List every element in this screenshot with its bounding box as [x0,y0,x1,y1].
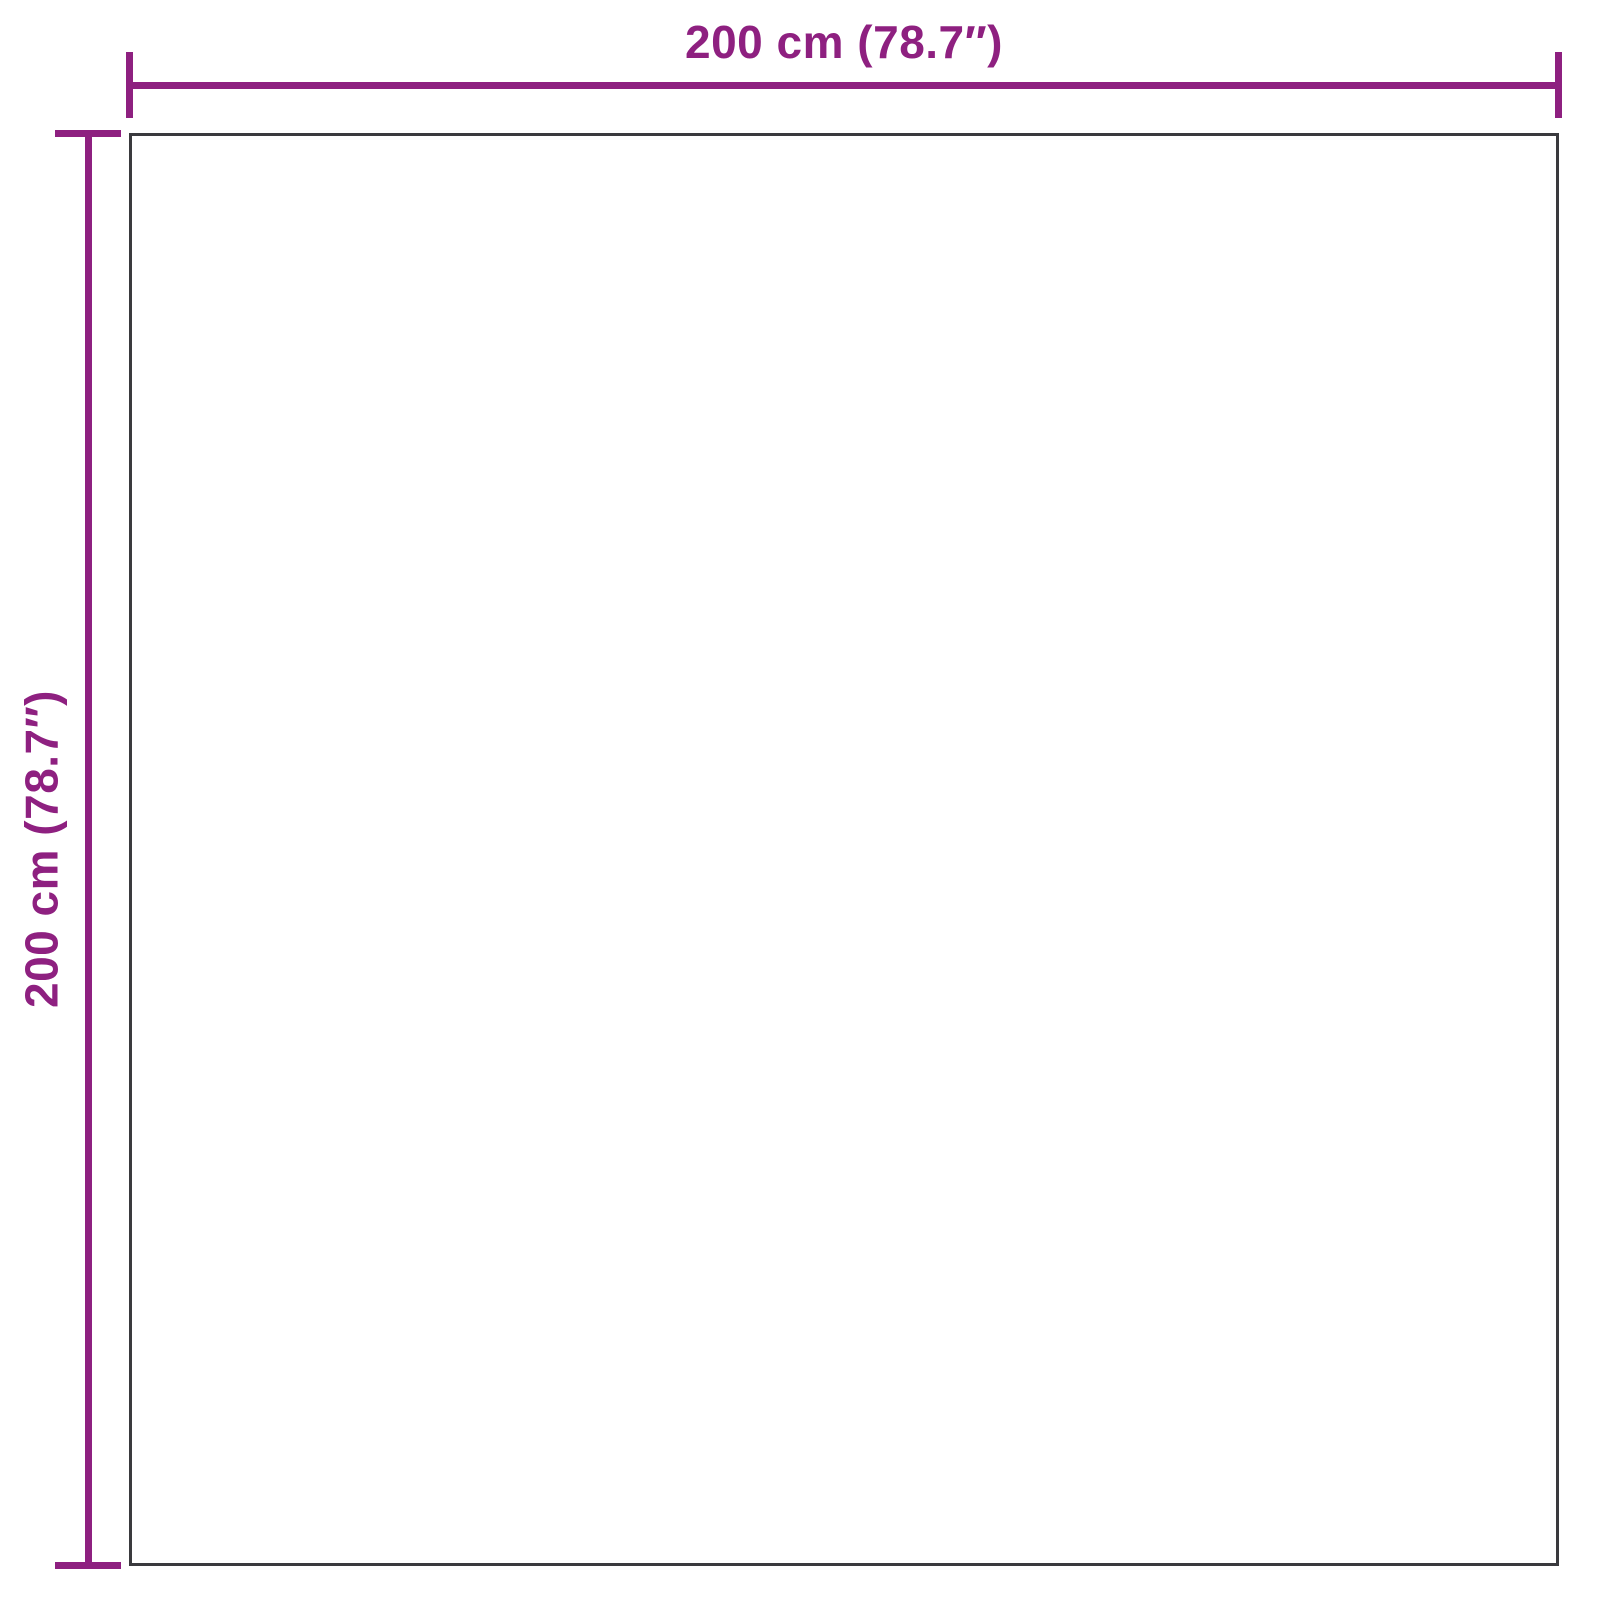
width-dimension-line [129,82,1559,89]
height-dimension-line [85,133,92,1566]
height-label: 200 cm (78.7″) [14,133,70,1566]
product-outline [129,133,1559,1566]
dimension-diagram: 200 cm (78.7″) 200 cm (78.7″) [0,0,1600,1600]
width-label: 200 cm (78.7″) [129,14,1559,70]
